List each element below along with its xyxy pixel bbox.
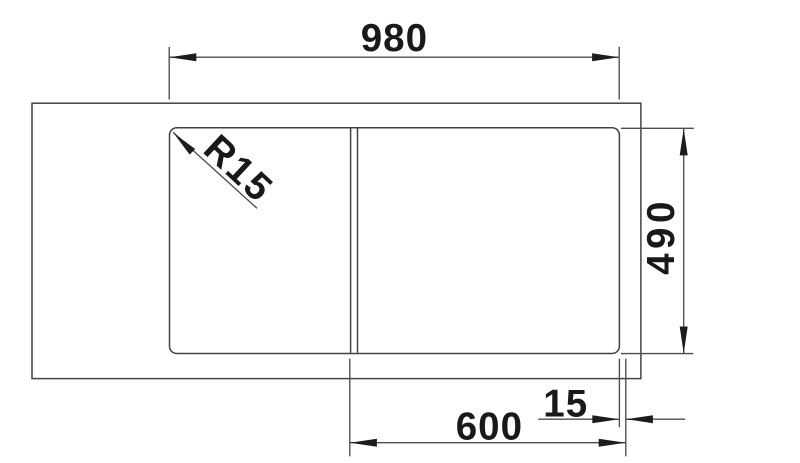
svg-text:R15: R15 [195,127,281,212]
svg-text:600: 600 [456,406,523,449]
svg-text:490: 490 [640,197,683,275]
svg-text:980: 980 [361,17,428,60]
svg-text:15: 15 [543,382,588,425]
